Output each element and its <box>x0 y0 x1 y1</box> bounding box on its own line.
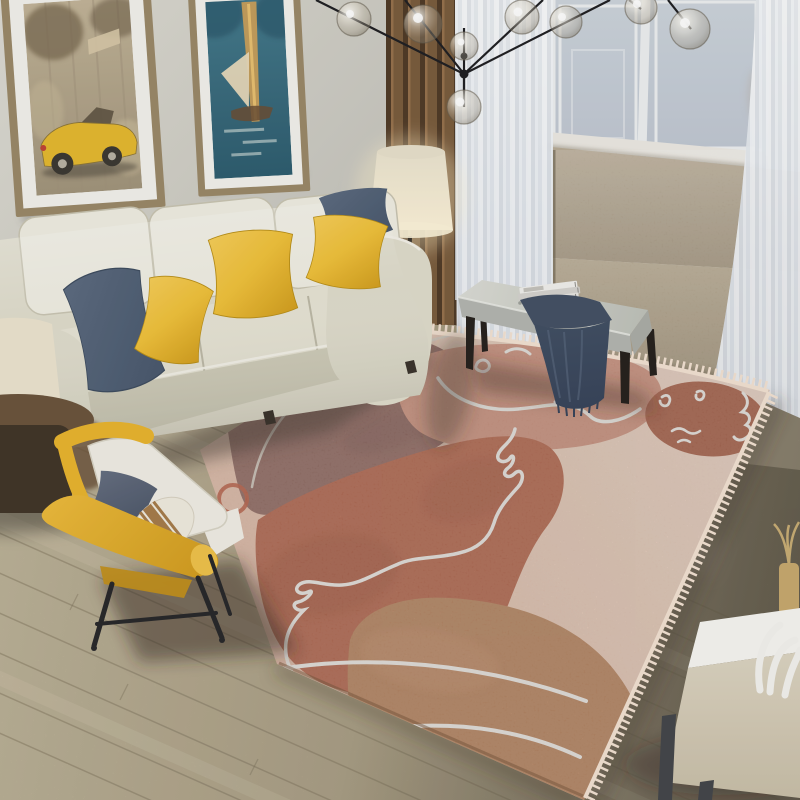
wall-art-car-frame <box>0 0 166 219</box>
pillow-yellow-center <box>208 227 298 320</box>
bench-leg-front-right <box>620 351 630 404</box>
living-room-photo <box>0 0 800 800</box>
left-table-lamp-shade <box>0 318 60 404</box>
pillow-yellow-right <box>305 212 388 293</box>
scene-canvas <box>0 0 800 800</box>
wall-art-sailboat-frame <box>183 0 316 197</box>
window-pane-main <box>552 0 765 158</box>
